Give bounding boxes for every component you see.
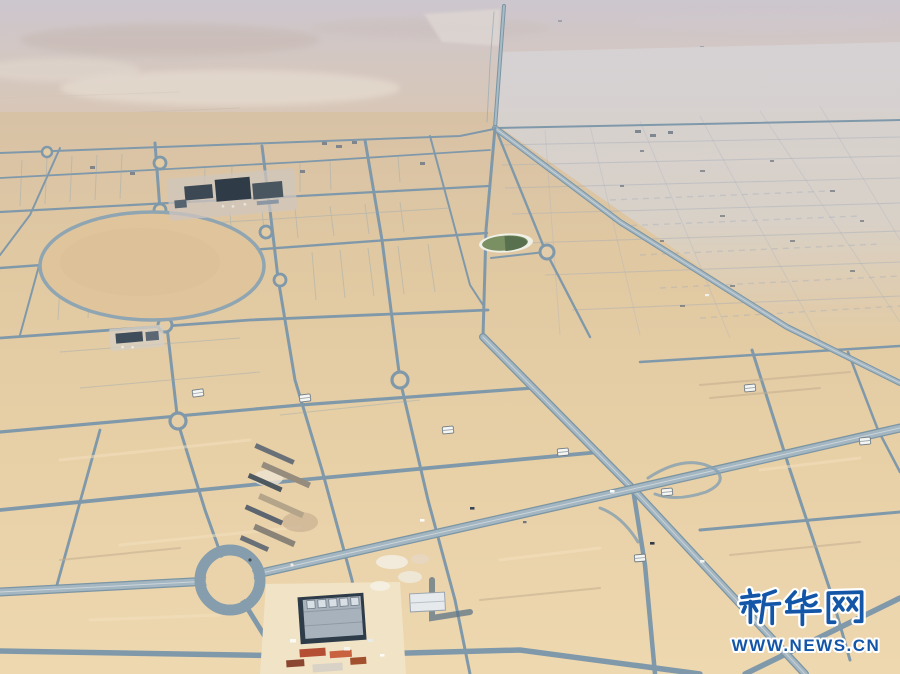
warehouse-building	[297, 593, 366, 644]
xinhua-url: WWW.NEWS.CN	[732, 636, 881, 655]
aerial-photo: WWW.NEWS.CN	[0, 0, 900, 674]
roadside-site	[109, 325, 165, 352]
white-shed	[410, 592, 446, 612]
circular-plot	[40, 212, 264, 320]
aerial-photo-canvas: WWW.NEWS.CN	[0, 0, 900, 674]
xinhua-watermark: WWW.NEWS.CN	[732, 590, 881, 655]
